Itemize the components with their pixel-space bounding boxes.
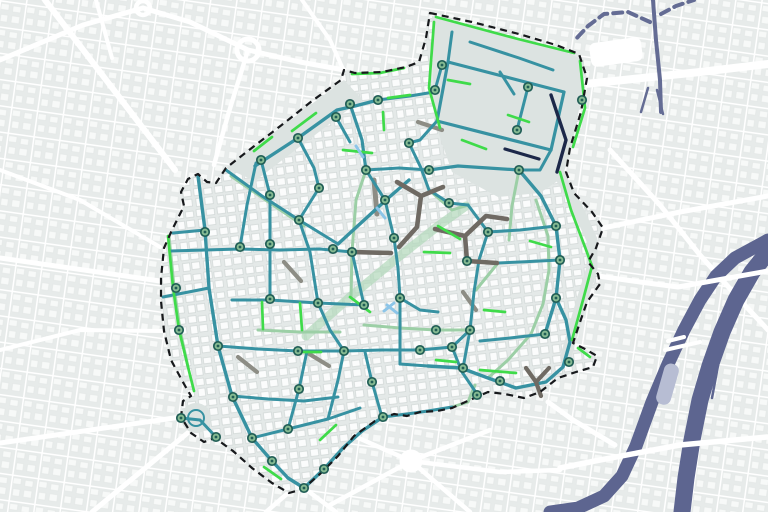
network-node <box>314 299 322 307</box>
network-node <box>466 326 474 334</box>
network-node <box>201 228 209 236</box>
node-dot <box>269 194 272 197</box>
network-node <box>294 347 302 355</box>
node-dot <box>399 297 402 300</box>
network-node <box>248 434 256 442</box>
network-node <box>257 156 265 164</box>
network-node <box>513 126 521 134</box>
street-segment <box>383 112 384 130</box>
node-dot <box>363 304 366 307</box>
network-node <box>346 100 354 108</box>
node-dot <box>451 346 454 349</box>
street-segment <box>424 252 450 253</box>
node-dot <box>351 251 354 254</box>
node-dot <box>269 243 272 246</box>
node-dot <box>269 298 272 301</box>
node-dot <box>462 367 465 370</box>
network-node <box>172 284 180 292</box>
network-node <box>236 243 244 251</box>
node-dot <box>527 86 530 89</box>
network-node <box>432 326 440 334</box>
network-node <box>448 343 456 351</box>
node-dot <box>180 417 183 420</box>
network-node <box>295 216 303 224</box>
network-node <box>300 484 308 492</box>
node-dot <box>384 199 387 202</box>
network-node <box>445 199 453 207</box>
network-node <box>294 134 302 142</box>
node-dot <box>499 380 502 383</box>
node-dot <box>393 237 396 240</box>
map-viewport[interactable] <box>0 0 768 512</box>
network-node <box>524 83 532 91</box>
node-dot <box>215 436 218 439</box>
network-node <box>565 358 573 366</box>
network-node <box>396 294 404 302</box>
network-node <box>175 326 183 334</box>
map-canvas[interactable] <box>0 0 768 512</box>
network-node <box>332 113 340 121</box>
node-dot <box>297 137 300 140</box>
network-node <box>390 234 398 242</box>
network-node <box>177 414 185 422</box>
node-dot <box>469 329 472 332</box>
network-node <box>496 377 504 385</box>
node-dot <box>555 225 558 228</box>
node-dot <box>428 169 431 172</box>
node-dot <box>323 468 326 471</box>
node-dot <box>343 350 346 353</box>
network-node <box>320 465 328 473</box>
street-segment <box>262 302 263 329</box>
network-node <box>556 256 564 264</box>
node-dot <box>271 460 274 463</box>
network-node <box>360 301 368 309</box>
node-dot <box>516 129 519 132</box>
network-node <box>348 248 356 256</box>
node-dot <box>204 231 207 234</box>
node-dot <box>544 333 547 336</box>
node-dot <box>232 396 235 399</box>
network-node <box>212 433 220 441</box>
node-dot <box>365 169 368 172</box>
node-dot <box>297 350 300 353</box>
node-dot <box>581 99 584 102</box>
network-node <box>368 378 376 386</box>
node-dot <box>371 381 374 384</box>
node-dot <box>349 103 352 106</box>
network-node <box>578 96 586 104</box>
node-dot <box>476 394 479 397</box>
network-node <box>431 86 439 94</box>
network-node <box>284 425 292 433</box>
node-dot <box>318 187 321 190</box>
node-dot <box>408 142 411 145</box>
node-dot <box>435 329 438 332</box>
node-dot <box>287 428 290 431</box>
node-dot <box>441 64 444 67</box>
network-node <box>416 346 424 354</box>
street-segment <box>351 252 352 297</box>
network-node <box>379 413 387 421</box>
node-dot <box>298 388 301 391</box>
network-node <box>405 139 413 147</box>
node-dot <box>178 329 181 332</box>
node-dot <box>466 260 469 263</box>
node-dot <box>332 248 335 251</box>
node-dot <box>448 202 451 205</box>
node-dot <box>568 361 571 364</box>
node-dot <box>487 231 490 234</box>
node-dot <box>239 246 242 249</box>
network-node <box>381 196 389 204</box>
network-node <box>340 347 348 355</box>
network-node <box>515 166 523 174</box>
network-node <box>266 191 274 199</box>
network-node <box>484 228 492 236</box>
network-node <box>329 245 337 253</box>
network-node <box>268 457 276 465</box>
network-node <box>266 295 274 303</box>
network-node <box>552 222 560 230</box>
node-dot <box>419 349 422 352</box>
network-node <box>463 257 471 265</box>
network-node <box>541 330 549 338</box>
node-dot <box>303 487 306 490</box>
node-dot <box>382 416 385 419</box>
street-segment <box>400 364 428 366</box>
network-node <box>374 96 382 104</box>
street-segment <box>352 252 391 253</box>
network-node <box>473 391 481 399</box>
network-node <box>552 294 560 302</box>
network-node <box>459 364 467 372</box>
network-node <box>295 385 303 393</box>
node-dot <box>260 159 263 162</box>
network-node <box>438 61 446 69</box>
node-dot <box>298 219 301 222</box>
node-dot <box>518 169 521 172</box>
node-dot <box>217 345 220 348</box>
node-dot <box>335 116 338 119</box>
network-node <box>315 184 323 192</box>
node-dot <box>559 259 562 262</box>
node-dot <box>251 437 254 440</box>
node-dot <box>317 302 320 305</box>
network-node <box>362 166 370 174</box>
node-dot <box>175 287 178 290</box>
node-dot <box>434 89 437 92</box>
network-node <box>266 240 274 248</box>
network-node <box>229 393 237 401</box>
node-dot <box>377 99 380 102</box>
network-node <box>425 166 433 174</box>
node-dot <box>555 297 558 300</box>
network-node <box>214 342 222 350</box>
